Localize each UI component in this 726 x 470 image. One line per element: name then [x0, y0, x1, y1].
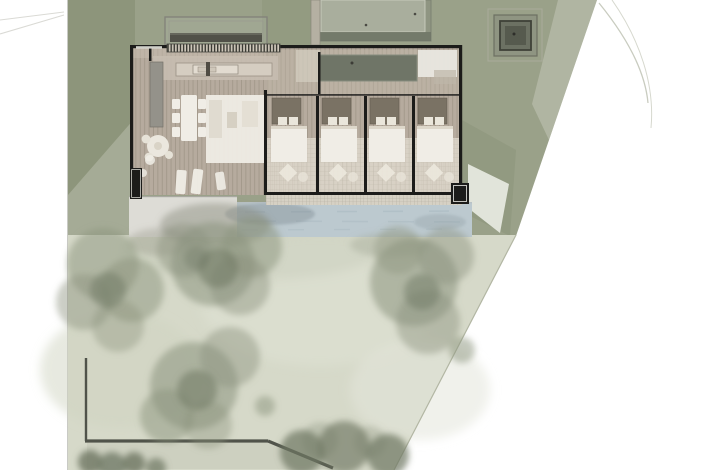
- living-room: [206, 95, 264, 163]
- pillow: [435, 117, 444, 125]
- bed-fold: [321, 126, 357, 129]
- kitchen-cooktop: [206, 62, 210, 76]
- pool-deck-edge: [129, 196, 237, 197]
- bed: [321, 126, 357, 162]
- clerestory-window: [136, 46, 162, 48]
- garage-connector: [311, 0, 320, 45]
- well-pavilion: [488, 9, 542, 61]
- bed: [271, 126, 307, 162]
- pillow: [339, 117, 348, 125]
- bed: [417, 126, 453, 162]
- main-house: [130, 44, 469, 205]
- wall-unit: [150, 62, 163, 127]
- coffee-table: [227, 112, 237, 128]
- pillow: [328, 117, 337, 125]
- sofa: [242, 101, 258, 127]
- kitchen: [153, 56, 278, 80]
- site-plan-rendering: [0, 0, 726, 470]
- pillow: [376, 117, 385, 125]
- bath-fixture: [434, 70, 456, 84]
- sofa: [209, 100, 222, 138]
- side-table: [396, 172, 406, 182]
- pillow: [387, 117, 396, 125]
- louver-strip: [167, 44, 280, 52]
- bed: [369, 126, 405, 162]
- garage-roof: [315, 0, 431, 41]
- corridor-light: [296, 50, 320, 82]
- pillow: [424, 117, 433, 125]
- side-table: [348, 172, 358, 182]
- dining-table: [172, 95, 206, 141]
- bed-fold: [271, 126, 307, 129]
- terrain-shade-top: [262, 0, 316, 46]
- pillow: [289, 117, 298, 125]
- pillow: [278, 117, 287, 125]
- site-plan-canvas: [0, 0, 726, 470]
- bed-fold: [417, 126, 453, 129]
- courtyard-dot: [351, 62, 354, 65]
- side-table: [298, 172, 308, 182]
- trellis-canopy: [165, 17, 267, 45]
- bed-fold: [369, 126, 405, 129]
- dark-courtyard: [320, 55, 417, 81]
- side-table: [444, 172, 454, 182]
